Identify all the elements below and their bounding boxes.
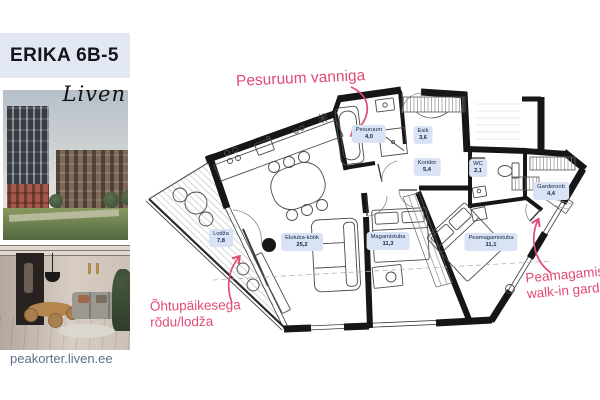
floor-plan-flyer: { "sidebar": { "title": "ERIKA 6B-5", "b…	[0, 0, 600, 400]
pendant-lamp-cord	[52, 253, 53, 273]
sofa-pillow	[96, 295, 107, 303]
room-label-magamistuba: Magamistuba 11,3	[367, 232, 410, 250]
room-area: 5,4	[418, 167, 437, 174]
apartment-title: ERIKA 6B-5	[0, 45, 119, 67]
room-area: 11,1	[468, 242, 513, 249]
room-name: Lodža	[213, 231, 229, 238]
annotation-text: rõdu/lodža	[150, 313, 241, 330]
liven-logo: Liven	[56, 82, 126, 106]
apartment-title-banner: ERIKA 6B-5	[0, 33, 130, 78]
room-name: Peamagamistuba	[468, 235, 513, 242]
apartment-tower-upper	[7, 106, 49, 184]
tree	[121, 190, 128, 205]
building-exterior-photo	[3, 90, 128, 240]
coat-rack	[403, 97, 465, 112]
chair	[24, 308, 38, 322]
room-label-pesuruum: Pesuruum 4,0	[352, 125, 386, 143]
hanging-coat	[24, 263, 33, 293]
room-name: Esik	[418, 128, 429, 135]
plant	[112, 269, 130, 331]
room-area: 11,3	[371, 241, 406, 248]
wardrobe-shelf	[530, 157, 575, 170]
room-name: Magamistuba	[371, 234, 406, 241]
floor-plan-drawing	[130, 0, 600, 400]
room-name: Koridor	[418, 160, 437, 167]
wall-decor	[88, 263, 91, 274]
structural-column	[262, 238, 276, 252]
room-label-esik: Esik 3,6	[414, 126, 433, 144]
room-area: 4,4	[537, 191, 565, 198]
website-url: peakorter.liven.ee	[10, 351, 113, 366]
interior-living-room-photo	[0, 245, 130, 350]
chair	[48, 313, 63, 328]
tree	[49, 194, 63, 208]
room-label-elutuba-kook: Elutuba-köök 25,2	[281, 233, 323, 251]
room-area: 25,2	[285, 242, 319, 249]
room-name: Pesuruum	[356, 127, 382, 134]
room-label-wc: WC 2,1	[469, 159, 487, 177]
annotation-balcony: Õhtupäikesega rõdu/lodža	[150, 297, 241, 330]
annotation-text: Õhtupäikesega	[150, 297, 241, 314]
room-area: 4,0	[356, 134, 382, 141]
room-name: Garderoob	[537, 184, 565, 191]
room-area: 2,1	[473, 168, 483, 175]
room-label-garderoob: Garderoob 4,4	[533, 182, 569, 200]
tree	[103, 192, 119, 208]
wall-decor	[96, 263, 99, 274]
room-area: 3,6	[418, 135, 429, 142]
room-label-koridor: Koridor 5,4	[414, 158, 441, 176]
room-name: Elutuba-köök	[285, 235, 319, 242]
room-label-lodza: Lodža 7,8	[209, 229, 233, 247]
sofa-pillow	[78, 295, 89, 303]
hood-symbol	[318, 113, 328, 123]
room-area: 7,8	[213, 238, 229, 245]
room-name: WC	[473, 161, 483, 168]
rug	[58, 324, 114, 338]
stairwell-hint	[476, 104, 520, 139]
room-label-peamagamistuba: Peamagamistuba 11,1	[464, 233, 517, 251]
